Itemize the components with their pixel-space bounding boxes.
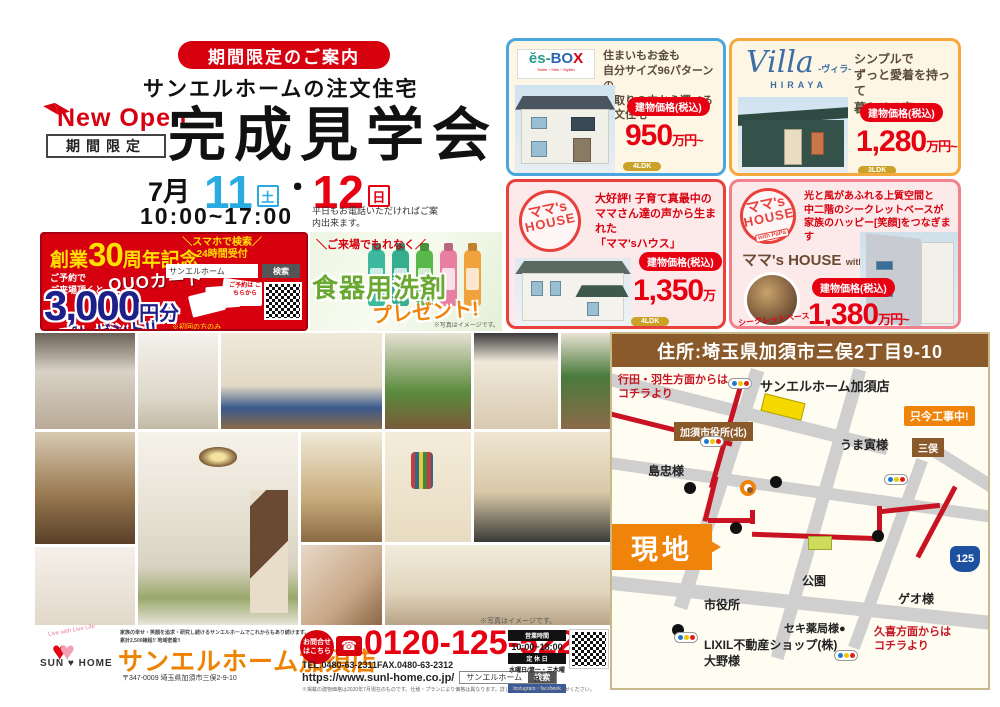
map-park-label: 公園 — [802, 572, 826, 589]
esbox-logo-b: B — [551, 50, 562, 67]
villa-price-badge: 建物価格(税込) — [860, 103, 943, 122]
traffic-signal-icon — [834, 650, 858, 661]
interior-photo-counter-sofa — [474, 432, 610, 542]
logo-sun: SUN — [40, 658, 64, 669]
papa-price: 1,380万円~ — [808, 300, 909, 329]
villa-tags: 3LDK 66.66m² — [858, 159, 958, 176]
traffic-signal-icon — [884, 474, 908, 485]
footer-qr-code — [570, 630, 608, 668]
interior-photo-dining — [35, 432, 135, 544]
contact-badge: お問合せ はこちら — [300, 630, 334, 664]
hours-label: 営業時間 — [508, 630, 566, 641]
interior-photo-pendant-room — [474, 333, 558, 429]
detergent-photo-note: ※写真はイメージです。 — [434, 320, 499, 329]
map-poi-dot — [684, 482, 696, 494]
map-address-header: 住所:埼玉県加須市三俣2丁目9-10 — [612, 334, 988, 367]
page-title: 完成見学会 — [168, 88, 498, 172]
esbox-logo-tagline: Smile・Slim・Stylish — [518, 67, 594, 73]
interior-photo-fan-room — [138, 432, 298, 625]
map-seki-label: セキ薬局様● — [784, 620, 846, 636]
interior-photo-living-blue-sofa — [221, 333, 382, 429]
legal-note: ※掲載の建物価格は2020年7月現在のものです。仕様・プランにより価格は異なりま… — [302, 686, 602, 693]
event-time: 10:00~17:00 — [140, 203, 293, 230]
weekday-sun-badge: 日 — [368, 185, 390, 207]
esbox-tags: 4LDK 70.45m² — [623, 155, 723, 176]
traffic-signal-icon — [728, 378, 752, 389]
map-genchi-balloon: 現地 — [612, 524, 712, 570]
product-card-mamas-house: ママ's HOUSE 大好評! 子育て真最中の ママさん達の声から生まれた 「マ… — [506, 179, 726, 329]
map-mitsumata-badge: 三俣 — [912, 438, 944, 457]
map-route — [750, 510, 755, 524]
map-ohno-label: 大野様 — [704, 652, 740, 669]
papa-price-badge: 建物価格(税込) — [812, 278, 895, 297]
search-input[interactable]: サンエルホーム — [166, 264, 258, 278]
map-geo-label: ゲオ様 — [898, 590, 934, 607]
interior-photo-green-sofa — [385, 333, 471, 429]
anniv-num: 30 — [88, 236, 123, 273]
hours-value: 10:00~18:00 — [508, 641, 566, 653]
quo-campaign-box: 創業30周年記念 ご予約で ご来場頂くと QUOカード 3,000円分 プレゼン… — [40, 232, 308, 331]
map-shimachu-label: 島忠様 — [648, 462, 684, 479]
tel-fax: TEL.0480-63-2311FAX.0480-63-2312 — [302, 660, 453, 670]
mamas-tags: 4LDK 105.15m² — [631, 310, 723, 329]
interior-photo-plant-corner — [561, 333, 610, 429]
papa-price-suffix: 万円~ — [878, 312, 909, 327]
esbox-house-photo — [515, 85, 615, 173]
business-hours-block: 営業時間 10:00~18:00 定 休 日 水曜日/第一・三木曜日 Insta… — [508, 630, 566, 693]
closed-value: 水曜日/第一・三木曜日 — [508, 664, 566, 684]
villa-house-photo — [738, 97, 848, 173]
map-poi-dot — [872, 530, 884, 542]
smartphone-search-note: ＼スマホで検索／ 24時間受付 — [182, 237, 262, 261]
interior-photo-curtain-stairs — [301, 545, 382, 625]
logo-home: HOME — [79, 658, 113, 669]
website-url[interactable]: https://www.sunl-home.co.jp/ — [302, 672, 454, 684]
limited-time-pill: 期間限定のご案内 — [178, 41, 390, 69]
map-from-kuki: 久喜方面からは コチラより — [874, 626, 951, 654]
esbox-price: 950万円~ — [625, 121, 703, 151]
sunhome-logo-text: SUN ♥ HOME — [40, 658, 113, 669]
stamp-with-papa: with PaPa — [755, 228, 790, 243]
interior-photo-pantry — [138, 333, 218, 429]
map-park-area — [808, 536, 832, 550]
mamas-price-badge: 建物価格(税込) — [639, 252, 722, 271]
esbox-logo-es: ĕs- — [529, 50, 551, 67]
closed-label: 定 休 日 — [508, 653, 566, 664]
interior-photo-loft — [35, 333, 135, 429]
esbox-price-badge: 建物価格(税込) — [627, 97, 710, 116]
esbox-logo-x: X — [573, 50, 583, 67]
villa-tag-ldk: 3LDK — [858, 166, 896, 175]
mamas-tag-ldk: 4LDK — [631, 317, 669, 326]
store-address: 〒347-0009 埼玉県加須市三俣2-9-10 — [122, 673, 237, 683]
esbox-logo-o: O — [561, 50, 573, 67]
map-route — [708, 518, 752, 523]
mamas-house-photo — [515, 258, 631, 326]
map-construction-badge: 只今工事中! — [904, 406, 975, 426]
interior-photo-kitchen — [301, 432, 382, 542]
product-card-esbox: ĕs-BOX Smile・Slim・Stylish 住まいもお金も 自分サイズ9… — [506, 38, 726, 176]
papa-name-main: ママ's HOUSE — [742, 252, 841, 269]
search-note-1: ＼スマホで検索／ — [182, 237, 262, 249]
interior-photo-living-bench — [385, 545, 610, 625]
esbox-tag-ldk: 4LDK — [623, 162, 661, 171]
esbox-price-value: 950 — [625, 119, 672, 152]
qr-code — [264, 282, 302, 320]
reserve-tab: ご予約は こちらから — [228, 282, 262, 306]
limited-time-pill-label: 期間限定のご案内 — [208, 43, 360, 68]
flyer-page: 期間限定のご案内 サンエルホームの注文住宅 ◥◣ New Open 期間限定 完… — [0, 0, 1000, 707]
map-site-target — [740, 480, 756, 496]
mamas-house-stamp: ママ's HOUSE — [513, 184, 587, 258]
map-from-gyoda: 行田・羽生方面からは コチラより — [618, 374, 728, 402]
villa-logo: Villa -ヴィラ- HIRAYA — [746, 45, 851, 90]
traffic-signal-icon — [674, 632, 698, 643]
map-poi-dot — [730, 522, 742, 534]
traffic-signal-icon — [700, 436, 724, 447]
esbox-price-suffix: 万円~ — [672, 133, 703, 148]
villa-logo-sub: HIRAYA — [746, 80, 851, 90]
phone-icon: ☎ — [336, 636, 362, 656]
map-shop-label: サンエルホーム加須店 — [760, 376, 890, 395]
villa-price-suffix: 万円~ — [926, 139, 957, 154]
access-map: 住所:埼玉県加須市三俣2丁目9-10 行田・羽生方面からは コチラより サンエル… — [610, 332, 990, 690]
product-card-mamas-papa: ママ's HOUSE with PaPa 光と風があふれる上質空間と 中二階のシ… — [729, 179, 961, 329]
detergent-banner: ＼ご来場でもれなく／ — [316, 236, 426, 252]
anniv-pre: 創業 — [50, 250, 88, 271]
villa-logo-kana: -ヴィラ- — [818, 64, 851, 74]
villa-price-value: 1,280 — [856, 125, 926, 158]
search-note-2: 24時間受付 — [182, 249, 262, 261]
esbox-logo: ĕs-BOX Smile・Slim・Stylish — [517, 49, 595, 79]
detergent-promo-box: ＼ご来場でもれなく／ 食器用洗剤 プレゼント! ※写真はイメージです。 — [310, 232, 502, 331]
interior-photo-closet — [35, 547, 135, 625]
map-route125-shield: 125 — [950, 546, 980, 572]
mamas-description: 大好評! 子育て真最中の ママさん達の声から生まれた 「ママ'sハウス」 — [595, 192, 723, 251]
mamas-price-value: 1,350 — [633, 274, 703, 307]
map-poi-dot — [770, 476, 782, 488]
search-button[interactable]: 検索 — [262, 264, 300, 278]
villa-logo-script: Villa — [746, 45, 814, 80]
product-card-villa: Villa -ヴィラ- HIRAYA シンプルで ずっと愛着を持って 暮らせる家… — [729, 38, 961, 176]
villa-price: 1,280万円~ — [856, 127, 957, 157]
map-lixil-label: LIXIL不動産ショップ(株) — [704, 636, 837, 653]
map-cityhall-label: 市役所 — [704, 596, 740, 613]
interior-photo-mosaic-lamp — [385, 432, 471, 542]
mamas-papa-stamp: ママ's HOUSE with PaPa — [735, 183, 801, 249]
weekday-note: 平日もお電話いただければご案内出来ます。 — [312, 206, 442, 229]
map-umatora-label: うま寅様 — [840, 436, 888, 453]
papa-price-value: 1,380 — [808, 298, 878, 329]
limited-time-box: 期間限定 — [46, 134, 166, 158]
